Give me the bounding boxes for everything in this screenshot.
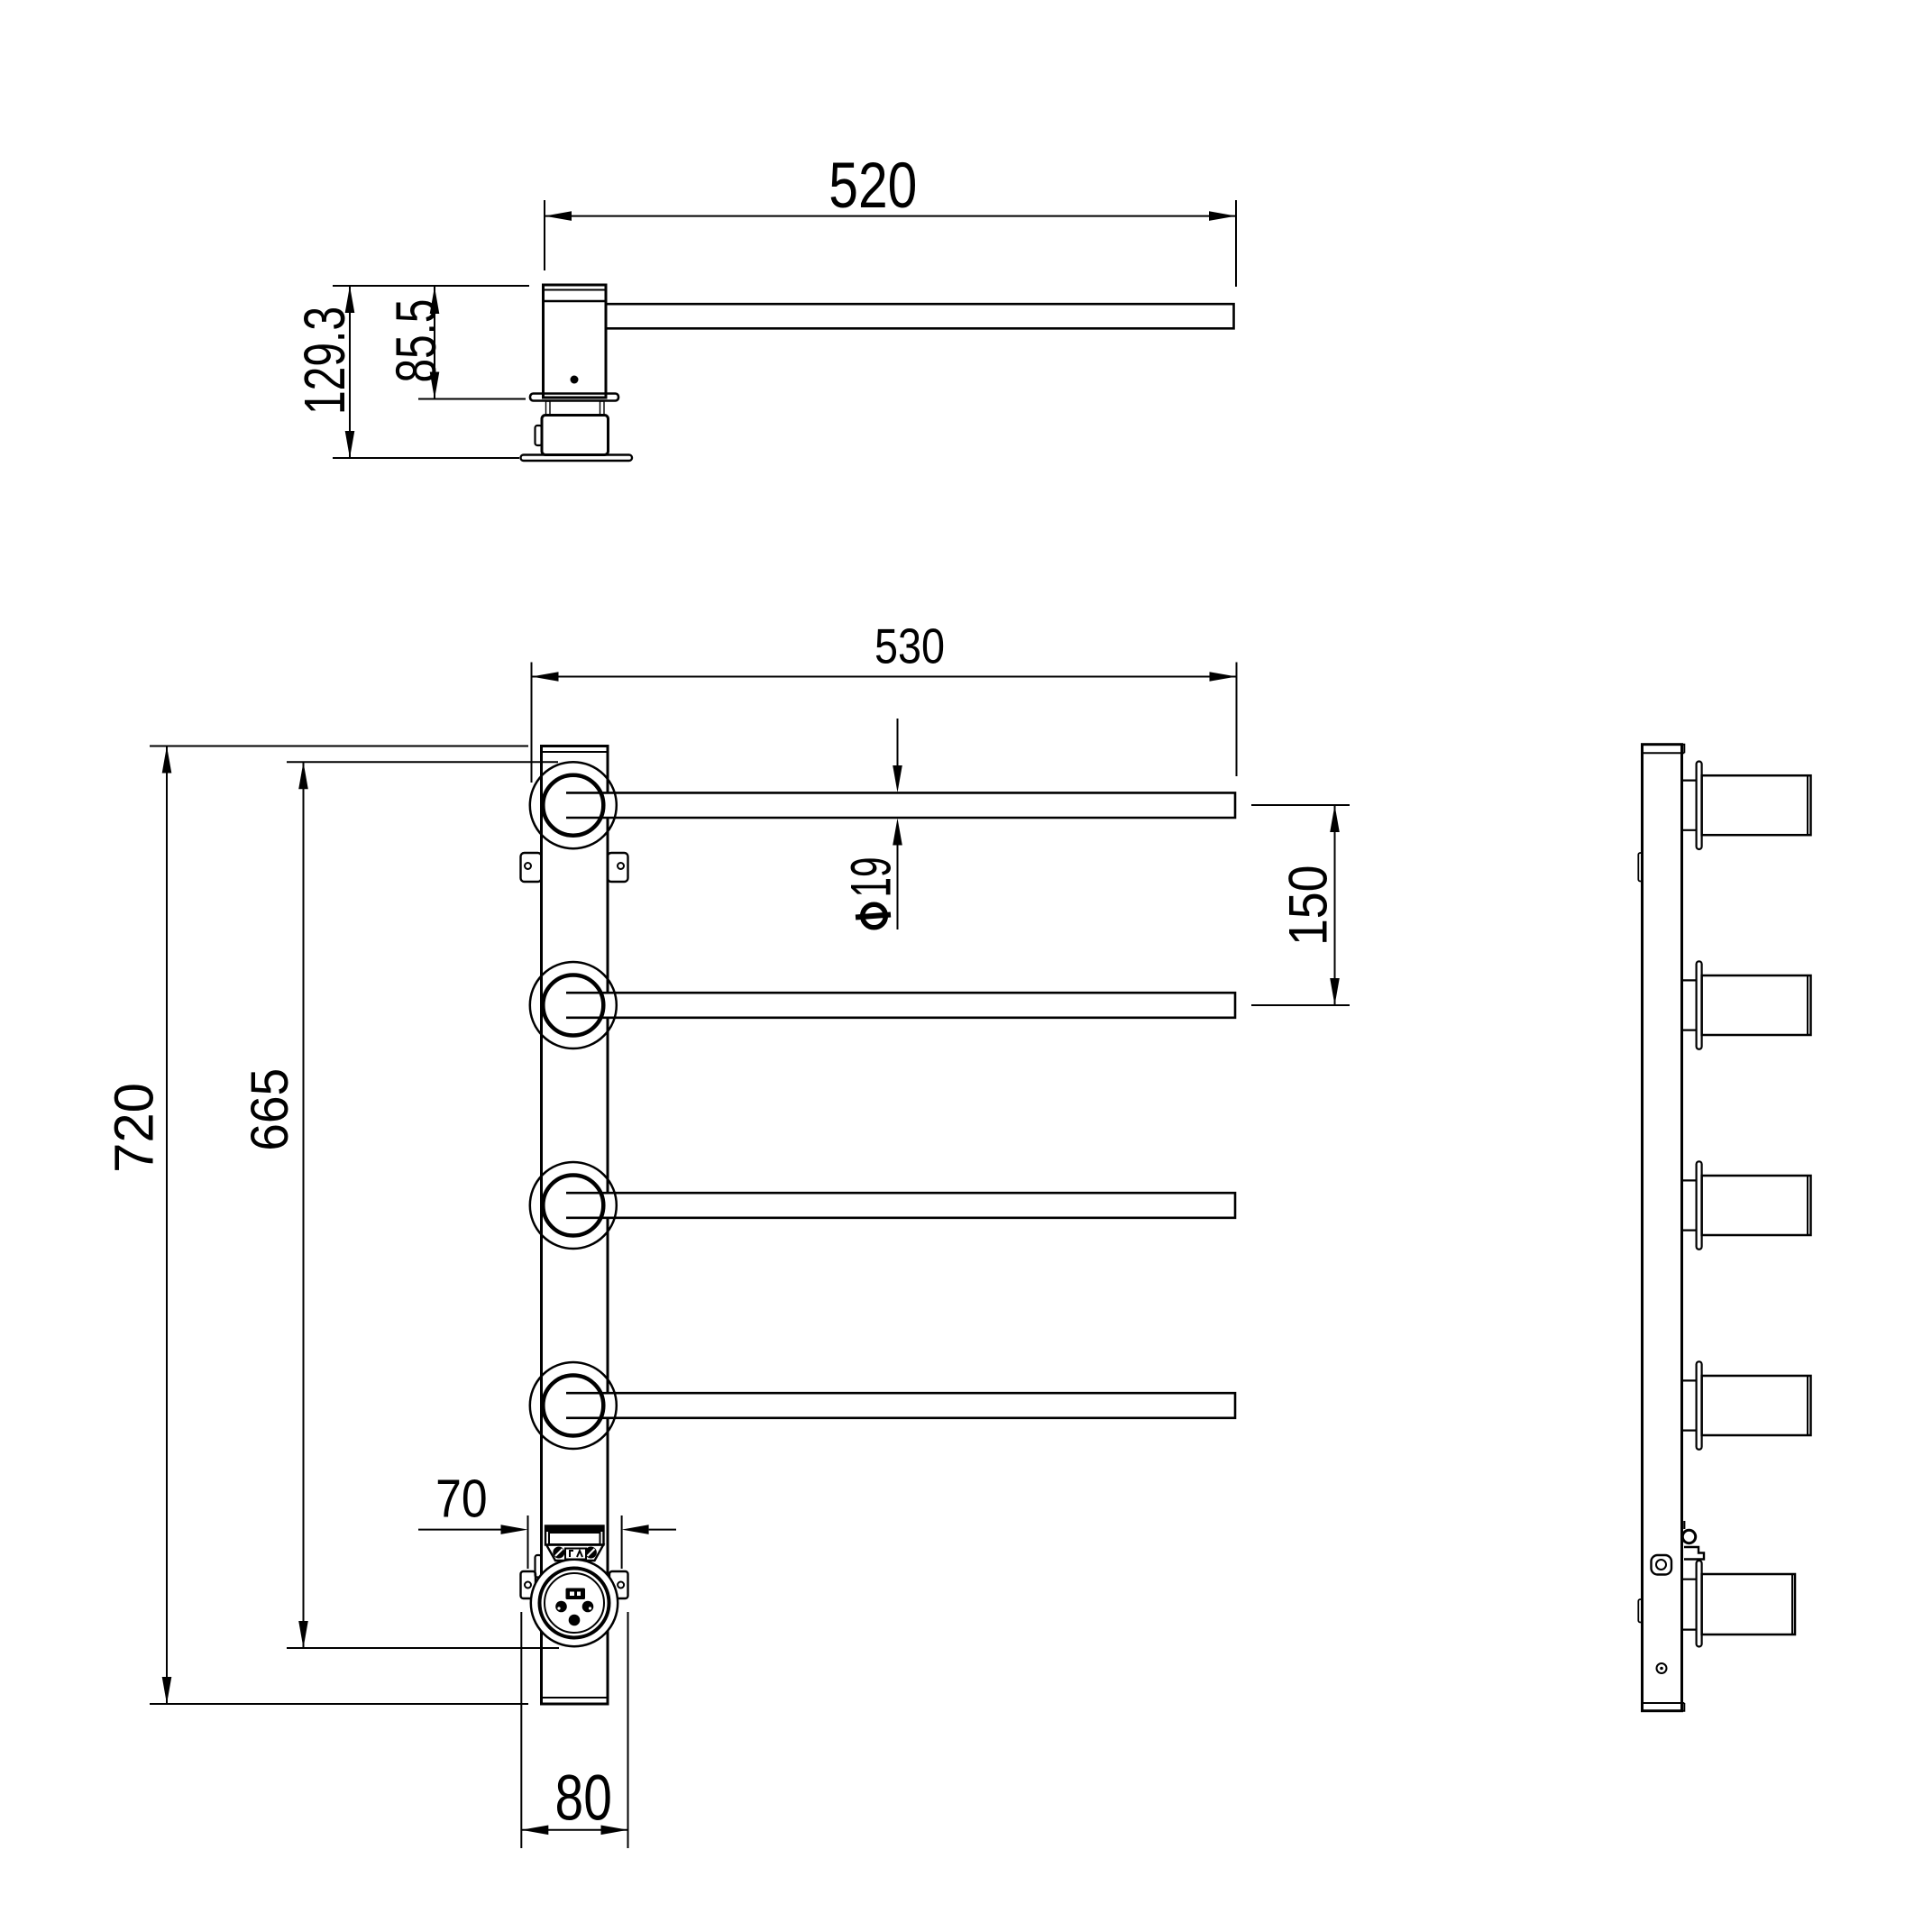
svg-text:80: 80 — [555, 1763, 612, 1835]
svg-text:665: 665 — [241, 1068, 299, 1151]
svg-text:19: 19 — [839, 857, 902, 898]
svg-text:720: 720 — [104, 1083, 165, 1173]
svg-text:520: 520 — [829, 151, 917, 222]
svg-text:150: 150 — [1278, 865, 1339, 947]
svg-text:70: 70 — [435, 1470, 488, 1529]
svg-text:530: 530 — [874, 618, 945, 674]
svg-text:129.3: 129.3 — [292, 307, 357, 415]
